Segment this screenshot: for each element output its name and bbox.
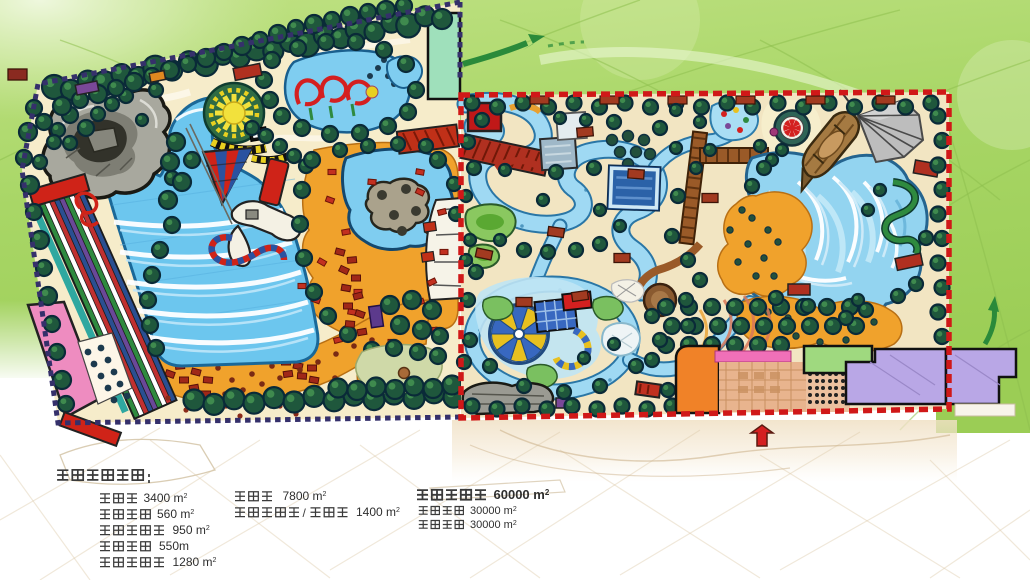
svg-text:7800 m2: 7800 m2 xyxy=(283,489,327,503)
svg-text:30000 m2: 30000 m2 xyxy=(470,519,517,531)
svg-text:60000 m2: 60000 m2 xyxy=(494,487,550,502)
svg-text:950 m2: 950 m2 xyxy=(173,523,210,537)
svg-text:3400 m2: 3400 m2 xyxy=(144,491,188,505)
svg-text:550m: 550m xyxy=(159,539,189,553)
svg-text:30000 m2: 30000 m2 xyxy=(470,505,517,517)
svg-text:1400 m2: 1400 m2 xyxy=(356,505,400,519)
svg-text:1280 m2: 1280 m2 xyxy=(173,555,217,569)
svg-text:560 m2: 560 m2 xyxy=(157,507,194,521)
